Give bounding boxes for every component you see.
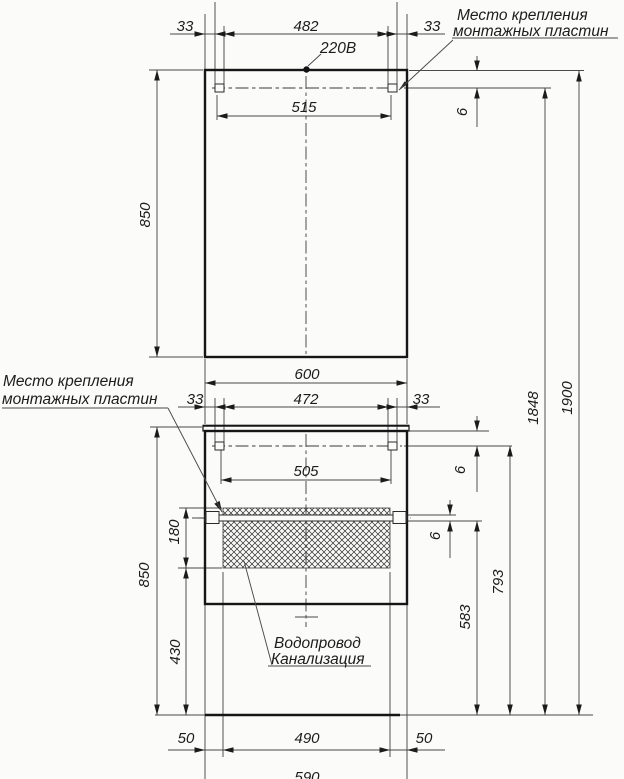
dimension-arrows <box>154 31 582 753</box>
mounting-note-top-line1: Место крепления <box>457 7 588 24</box>
plumbing-note-line1: Водопровод <box>274 635 361 652</box>
dim-cabinet-span-center: 505 <box>293 463 319 480</box>
dim-mirror-plate-drop: 6 <box>454 107 471 116</box>
dim-mirror-height: 850 <box>137 202 154 228</box>
dim-hatch-to-floor: 430 <box>167 639 184 665</box>
dim-base-offset-right: 50 <box>416 730 433 747</box>
dim-mirror-plate-to-floor: 1848 <box>525 391 542 425</box>
dim-mirror-top-to-floor: 1900 <box>559 381 576 415</box>
cabinet-mounting-plate-right <box>388 442 397 450</box>
mounting-note-left-line1: Место крепления <box>3 373 134 390</box>
dim-base-total: 590 <box>294 769 320 779</box>
dim-base-offset-left: 50 <box>178 730 195 747</box>
dim-mirror-span-center: 515 <box>291 99 317 116</box>
power-outlet-point <box>303 66 309 72</box>
dim-mirror-inset-right: 33 <box>424 18 441 35</box>
dim-cabinet-span-inner: 472 <box>293 391 319 408</box>
power-label: 220В <box>319 40 356 57</box>
dim-mirror-span-inner: 482 <box>293 18 319 35</box>
cabinet-mounting-plate-left <box>215 442 224 450</box>
dim-base-span: 490 <box>294 730 320 747</box>
dimension-lines <box>157 34 579 750</box>
dim-plate-to-floor: 793 <box>490 569 507 595</box>
dim-cabinet-inset-right: 33 <box>413 391 430 408</box>
dim-cabinet-width: 600 <box>294 366 320 383</box>
dim-hatch-height: 180 <box>166 519 183 545</box>
dim-cabinet-plate-drop: 6 <box>452 465 469 474</box>
mirror-mounting-plate-right <box>388 84 397 92</box>
dim-mirror-inset-left: 33 <box>177 18 194 35</box>
dim-cabinet-inset-left: 33 <box>187 391 204 408</box>
mounting-note-left-line2: монтажных пластин <box>2 391 158 408</box>
extension-lines <box>149 2 593 779</box>
mounting-note-top-line2: монтажных пластин <box>453 23 609 40</box>
leader-lines <box>2 38 618 666</box>
plumbing-note-line2: Канализация <box>271 651 365 668</box>
dim-rail-to-floor: 583 <box>457 604 474 630</box>
dim-rail-thickness: 6 <box>427 531 444 540</box>
technical-drawing: 33 482 33 515 6 850 600 33 472 33 505 6 … <box>0 0 624 779</box>
mirror-mounting-plate-left <box>215 84 224 92</box>
dim-cabinet-height: 850 <box>136 562 153 588</box>
